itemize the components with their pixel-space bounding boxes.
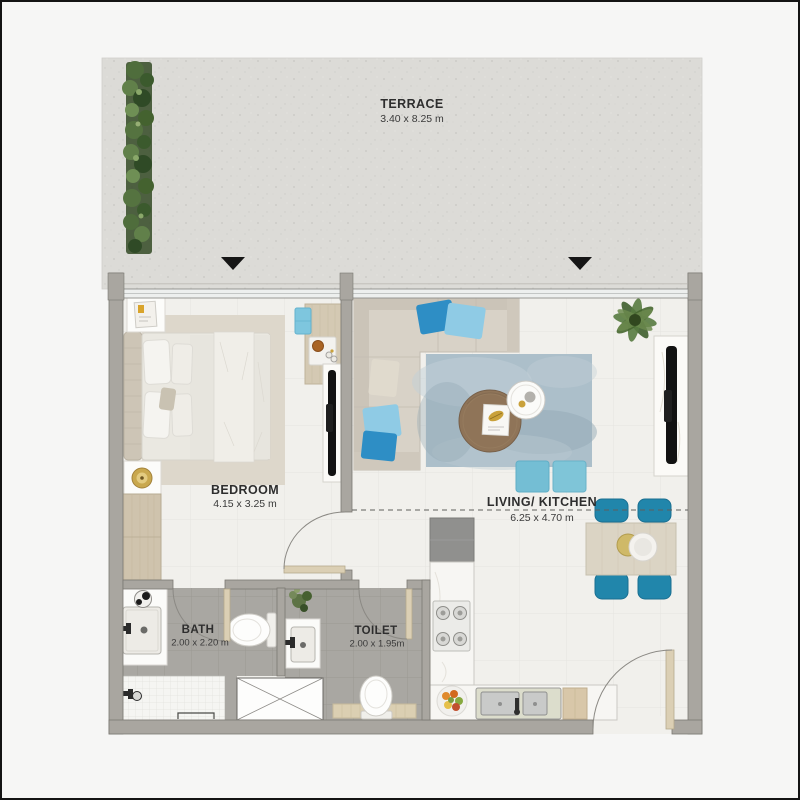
wall-toilet-kitchen bbox=[422, 580, 430, 720]
toilet-vanity bbox=[280, 619, 320, 668]
sink-faucet bbox=[515, 698, 519, 710]
bath-wc bbox=[228, 613, 276, 647]
bath-door-leaf bbox=[224, 589, 230, 641]
wall-bottom bbox=[109, 720, 593, 734]
sofa-pillow-light-blue bbox=[444, 303, 486, 340]
dining-chair bbox=[595, 573, 628, 599]
pouf-left bbox=[516, 461, 549, 492]
fruit-bowl bbox=[437, 686, 467, 716]
soap-dish bbox=[135, 591, 152, 608]
window-mullion-center bbox=[340, 273, 353, 300]
wall-bottom-right bbox=[672, 720, 702, 734]
bed-pillow bbox=[171, 344, 192, 385]
shaft-box bbox=[237, 678, 323, 720]
nightstand-top bbox=[127, 296, 165, 332]
bedroom-door-leaf bbox=[284, 566, 345, 573]
side-table bbox=[507, 381, 545, 419]
sofa-pillow-beige bbox=[368, 359, 400, 398]
floor-plan-svg bbox=[2, 2, 800, 800]
floor-plan: TERRACE 3.40 x 8.25 m BEDROOM 4.15 x 3.2… bbox=[0, 0, 800, 800]
entrance-door-leaf bbox=[666, 650, 674, 729]
decor-bowl bbox=[313, 341, 324, 352]
window-mullion-left bbox=[108, 273, 124, 300]
bed-pillow bbox=[143, 339, 171, 384]
green-wall-planter bbox=[122, 61, 154, 254]
window-mullion-right bbox=[688, 273, 702, 300]
cooktop bbox=[433, 601, 470, 651]
wall-left bbox=[109, 273, 123, 734]
sofa-pillow-blue bbox=[361, 430, 398, 461]
shower-partition bbox=[225, 676, 237, 720]
wall-bath-toilet-top bbox=[225, 580, 359, 589]
toilet-wc bbox=[360, 676, 392, 719]
window-sill-line bbox=[123, 283, 689, 284]
toilet-door-leaf bbox=[406, 589, 412, 639]
bedroom-tv bbox=[323, 364, 341, 482]
nightstand-bottom bbox=[124, 461, 161, 495]
pouf-right bbox=[553, 461, 586, 492]
dining-chair bbox=[638, 573, 671, 599]
bed-duvet-fold bbox=[214, 332, 254, 462]
wall-bath-toilet-divider bbox=[277, 588, 285, 676]
bed bbox=[124, 332, 270, 462]
terrace-floor bbox=[102, 58, 702, 289]
kitchen-sink bbox=[476, 688, 561, 719]
bed-accent-pillow bbox=[159, 387, 177, 411]
wall-bath-top bbox=[123, 580, 173, 589]
wall-bedroom-living-divider bbox=[341, 299, 352, 512]
magazine bbox=[134, 301, 157, 327]
wall-right bbox=[688, 273, 702, 734]
living-tv-unit bbox=[654, 336, 688, 476]
